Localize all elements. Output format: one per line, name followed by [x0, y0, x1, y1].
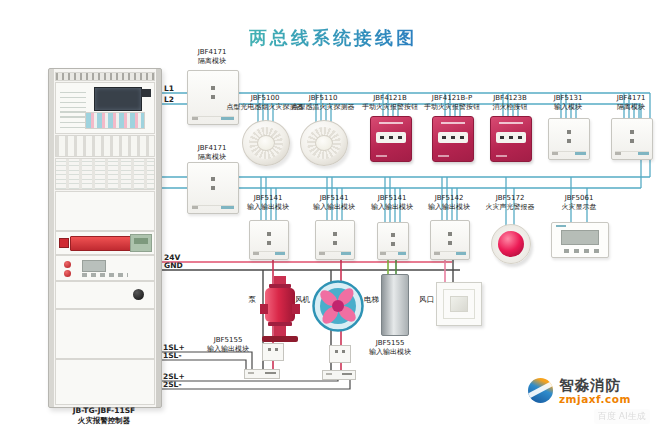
hydrant-button-icon [490, 116, 532, 162]
display-panel-icon [551, 222, 609, 258]
controller-lcd [94, 87, 142, 111]
rotary-knob [133, 289, 144, 300]
l1-tag: L1 [164, 84, 174, 93]
io-module-icon [430, 220, 470, 260]
terminal-bar-icon [322, 370, 356, 380]
panel-buttons [564, 249, 600, 253]
controller-keypad [86, 113, 144, 128]
input-module-icon [548, 118, 590, 160]
controller-name: 火灾报警控制器 [44, 416, 164, 426]
panel-lcd [561, 230, 599, 245]
io-module-icon [315, 220, 355, 260]
red-button [59, 238, 69, 248]
blank-panel [55, 359, 155, 405]
call-point-band [376, 132, 406, 143]
blank-panel [55, 309, 155, 359]
diagram-title: 两总线系统接线图 [249, 26, 417, 50]
isolator-module-icon [611, 118, 653, 160]
output-module-label: JBF5155输入输出模块 [332, 339, 448, 356]
pump-body [265, 288, 295, 322]
red-indicator [64, 270, 71, 277]
terminal-bar-icon [244, 369, 280, 379]
red-device-bar [70, 236, 134, 251]
brand-logo: 智淼消防 zmjaxf.com [528, 378, 631, 405]
device-label: JBF5061火灾显示盘 [521, 194, 637, 211]
indicator-led-block [60, 88, 86, 128]
small-lcd [82, 260, 106, 272]
fan-icon [312, 280, 364, 332]
output-module-label: JBF5155输入输出模块 [170, 336, 286, 353]
manual-call-point-icon [370, 116, 412, 162]
elevator-icon [381, 274, 409, 336]
isolator-mid-label: JBF4171隔离模块 [154, 144, 270, 161]
controller-model: JB-TG-JBF-11SF [44, 406, 164, 416]
sub-control-panel [55, 255, 155, 281]
mini-display [141, 89, 151, 97]
panel-logo [556, 225, 566, 227]
blank-panel [55, 191, 155, 231]
io-module-icon [249, 220, 289, 260]
device-label: JBF4171隔离模块 [573, 94, 665, 111]
small-button-row [82, 273, 128, 277]
air-vent-icon [436, 282, 482, 326]
ai-watermark: 百度 AI生成 [594, 409, 650, 424]
heat-detector-icon [300, 120, 348, 166]
brand-logo-icon [528, 378, 553, 403]
io-module-icon [377, 222, 409, 260]
power-panel [55, 281, 155, 309]
elevator-label: 电梯 [364, 295, 379, 305]
controller-label: JB-TG-JBF-11SF 火灾报警控制器 [44, 406, 164, 425]
manual-control-panel [55, 231, 155, 255]
fire-alarm-controller-cabinet [48, 68, 162, 408]
pump-icon [258, 276, 302, 342]
call-point-band [496, 132, 526, 143]
green-display [130, 234, 152, 252]
gnd-tag: GND [164, 261, 183, 270]
fan-label: 风机 [295, 295, 310, 305]
cabinet-vent [55, 72, 155, 81]
red-indicator [64, 261, 71, 268]
sounder-strobe-icon [491, 224, 531, 264]
sl2-minus-tag: 2SL- [163, 380, 182, 389]
wiring-diagram: 两总线系统接线图 JB-TG-JBF-11SF 火 [0, 0, 665, 436]
isolator-top-label: JBF4171隔离模块 [154, 48, 270, 65]
l2-tag: L2 [164, 95, 174, 104]
air-vent-label: 风口 [419, 295, 434, 305]
cabinet-terminal-strip [55, 135, 155, 157]
manual-call-point-icon [432, 116, 474, 162]
pump-label: 泵 [249, 295, 257, 305]
cabinet-main-panel [55, 82, 155, 134]
brand-site: zmjaxf.com [559, 393, 631, 405]
brand-name: 智淼消防 [559, 378, 631, 393]
indicator-matrix-panel [55, 158, 155, 190]
call-point-band [438, 132, 468, 143]
